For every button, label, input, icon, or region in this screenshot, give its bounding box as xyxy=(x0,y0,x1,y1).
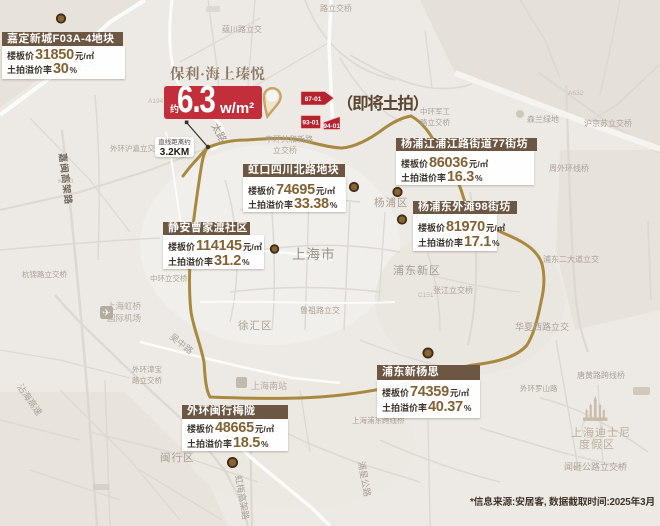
svg-text:87-01: 87-01 xyxy=(305,96,322,103)
svg-text:93-01: 93-01 xyxy=(302,120,319,127)
svg-text:94-01: 94-01 xyxy=(323,123,340,130)
